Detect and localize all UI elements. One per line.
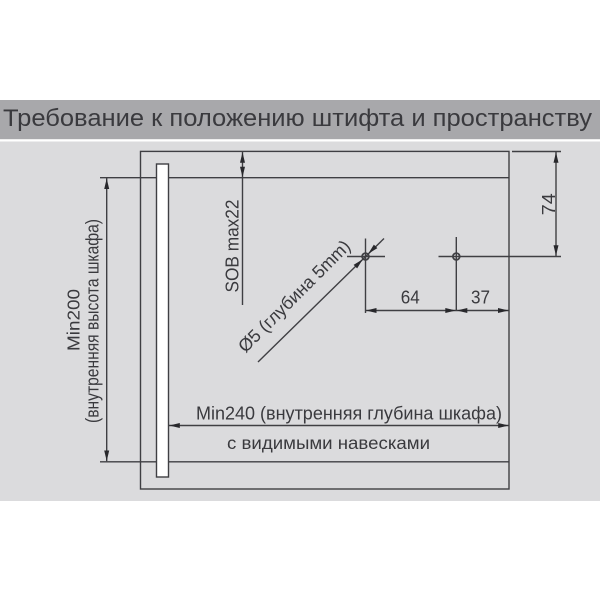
svg-text:37: 37 <box>471 288 490 308</box>
svg-text:74: 74 <box>539 193 559 215</box>
svg-text:64: 64 <box>401 288 420 308</box>
svg-text:Min200: Min200 <box>64 289 84 351</box>
svg-text:с видимыми навесками: с видимыми навесками <box>227 433 430 453</box>
svg-text:SOB max22: SOB max22 <box>223 200 243 293</box>
svg-text:Min240 (внутренняя глубина шка: Min240 (внутренняя глубина шкафа) <box>196 404 502 424</box>
svg-text:Требование к положению штифта: Требование к положению штифта и простран… <box>3 105 592 132</box>
svg-text:(внутренняя высота шкафа): (внутренняя высота шкафа) <box>83 219 103 423</box>
